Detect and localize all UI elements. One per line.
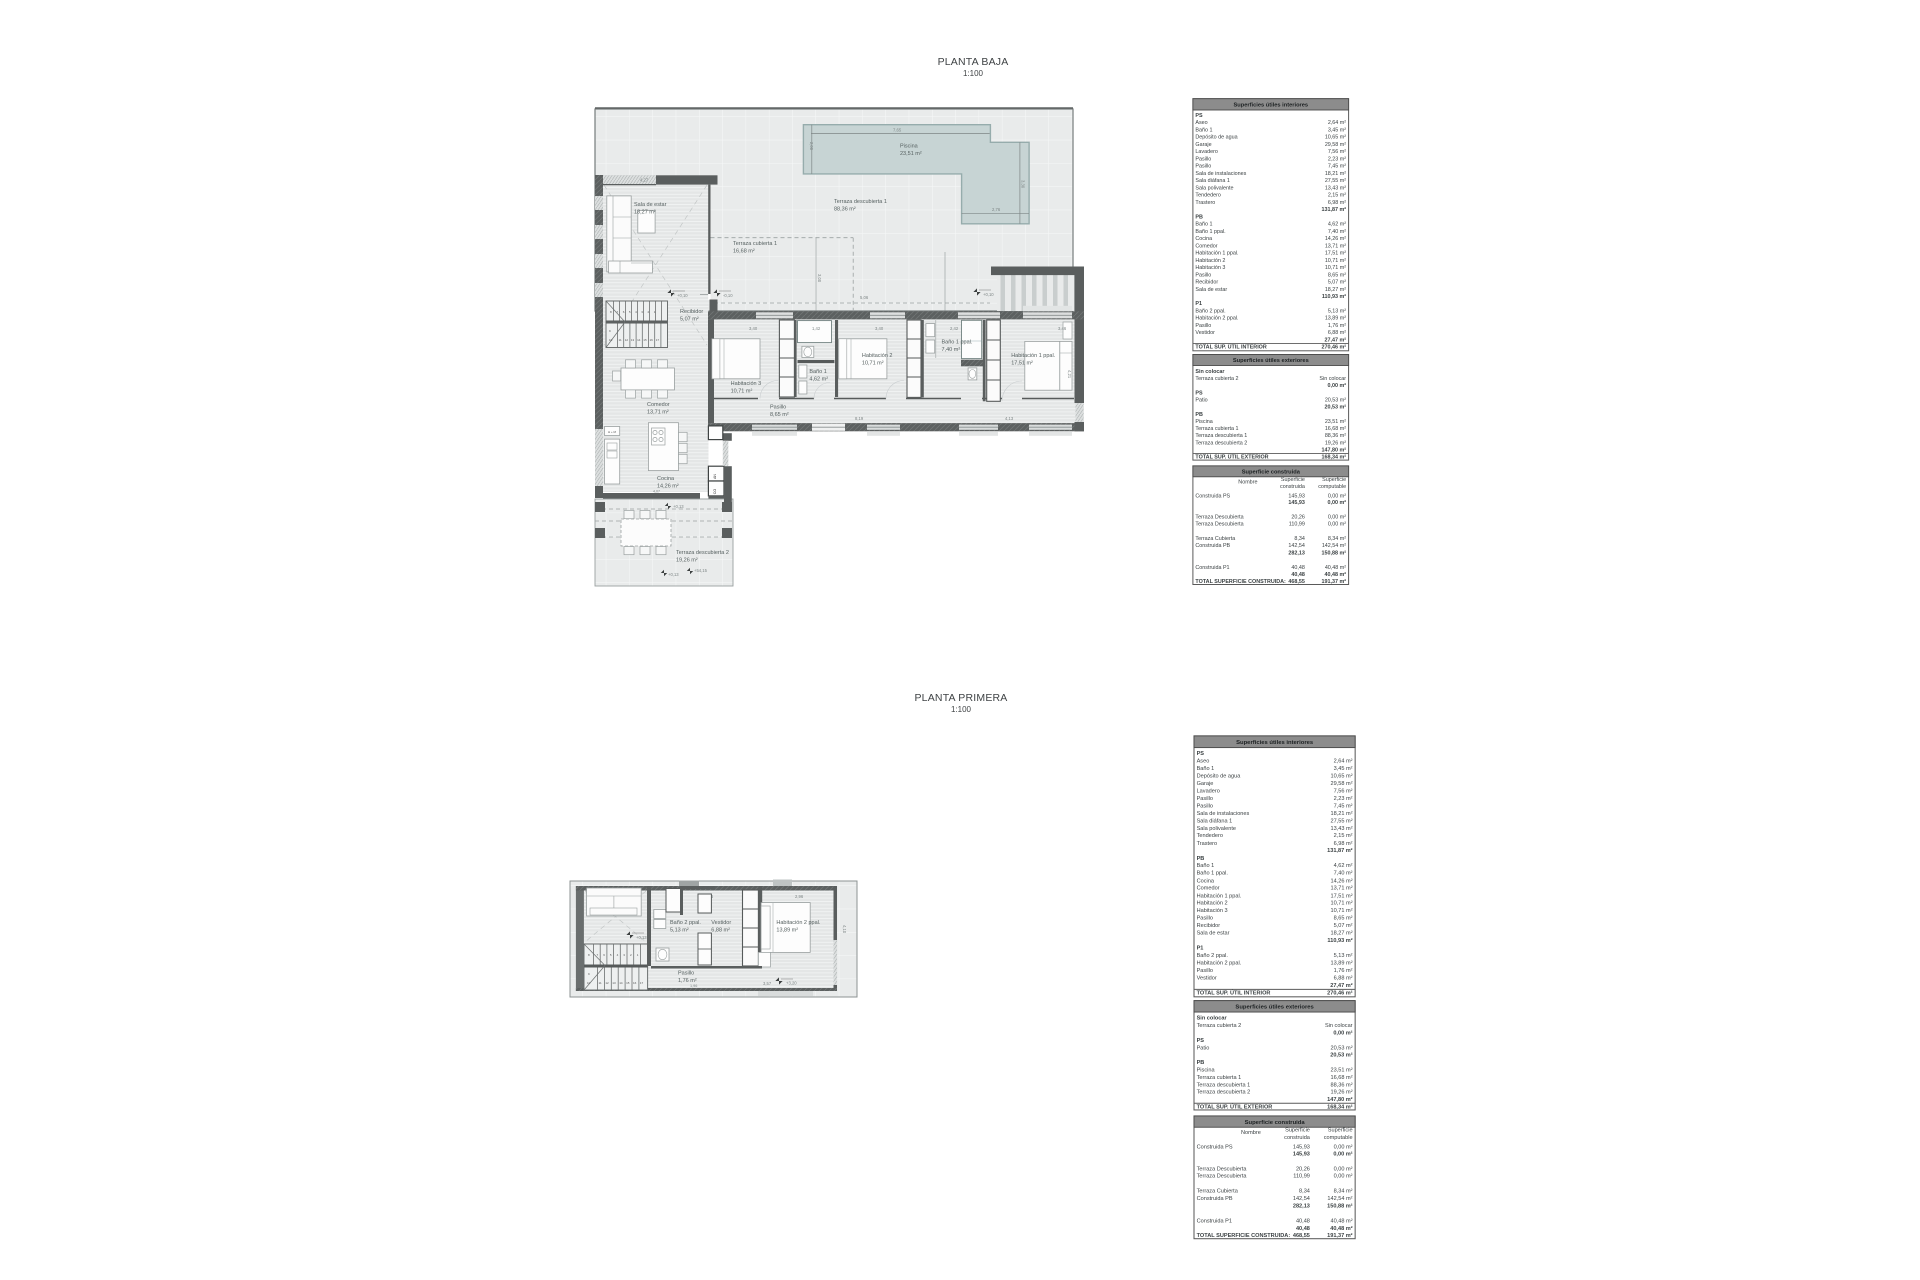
- svg-text:1:100: 1:100: [963, 69, 984, 78]
- svg-text:Baño 1: Baño 1: [1195, 128, 1212, 134]
- svg-text:Baño 2 ppal.: Baño 2 ppal.: [1195, 309, 1225, 315]
- svg-text:2,64 m²: 2,64 m²: [1328, 120, 1346, 126]
- svg-text:110,93 m²: 110,93 m²: [1322, 294, 1346, 300]
- svg-text:construida: construida: [1280, 484, 1305, 490]
- svg-text:Terraza cubierta 2: Terraza cubierta 2: [1195, 376, 1238, 382]
- svg-text:4,13: 4,13: [1005, 416, 1014, 421]
- svg-text:4,27: 4,27: [640, 178, 649, 183]
- svg-text:23,51 m²: 23,51 m²: [900, 151, 922, 157]
- svg-text:Pasillo: Pasillo: [1195, 272, 1211, 278]
- svg-text:Sala de instalaciones: Sala de instalaciones: [1195, 171, 1246, 177]
- svg-text:Recibidor: Recibidor: [1195, 280, 1218, 286]
- svg-text:Garaje: Garaje: [1195, 142, 1211, 148]
- svg-text:10: 10: [609, 338, 613, 342]
- svg-text:17: 17: [640, 981, 644, 985]
- svg-text:Baño 1: Baño 1: [1195, 222, 1212, 228]
- svg-text:Pasillo: Pasillo: [770, 405, 786, 411]
- svg-text:H + M: H + M: [608, 430, 617, 434]
- svg-text:270,46 m²: 270,46 m²: [1322, 345, 1347, 351]
- svg-text:3,40: 3,40: [749, 326, 758, 331]
- svg-text:Superficie: Superficie: [1281, 477, 1305, 483]
- svg-text:Trastero: Trastero: [1195, 200, 1215, 206]
- svg-text:15: 15: [626, 981, 630, 985]
- svg-text:8,65 m²: 8,65 m²: [770, 412, 789, 418]
- svg-text:TOTAL SUP. ÚTIL INTERIOR: TOTAL SUP. ÚTIL INTERIOR: [1195, 344, 1266, 351]
- svg-text:Vestidor: Vestidor: [711, 920, 731, 926]
- svg-text:2,15 m²: 2,15 m²: [1328, 193, 1346, 199]
- svg-text:Pasillo: Pasillo: [1195, 164, 1211, 170]
- svg-text:Sala de estar: Sala de estar: [634, 202, 667, 208]
- svg-text:2,96: 2,96: [795, 894, 804, 899]
- svg-text:Lavadero: Lavadero: [1195, 149, 1217, 155]
- svg-text:Habitación 2: Habitación 2: [1195, 258, 1225, 264]
- svg-text:2,76: 2,76: [992, 207, 1001, 212]
- svg-text:17,51 m²: 17,51 m²: [1011, 361, 1033, 367]
- svg-text:6,88 m²: 6,88 m²: [711, 928, 730, 934]
- svg-text:16: 16: [633, 981, 637, 985]
- svg-text:20,26: 20,26: [1291, 515, 1305, 521]
- svg-text:5,07 m²: 5,07 m²: [1328, 280, 1346, 286]
- svg-text:3,57: 3,57: [763, 981, 772, 986]
- svg-text:10,65 m²: 10,65 m²: [1325, 135, 1346, 141]
- svg-text:Habitación 3: Habitación 3: [731, 381, 762, 387]
- svg-text:8,19: 8,19: [855, 416, 864, 421]
- svg-text:Superficie: Superficie: [1322, 477, 1346, 483]
- svg-text:computable: computable: [1318, 484, 1346, 490]
- svg-text:Habitación 1 ppal.: Habitación 1 ppal.: [1195, 251, 1238, 257]
- svg-text:PS: PS: [1195, 390, 1203, 396]
- svg-text:10,71 m²: 10,71 m²: [731, 389, 753, 395]
- svg-text:16,68 m²: 16,68 m²: [1325, 426, 1346, 432]
- svg-text:0,00 m²: 0,00 m²: [1328, 500, 1347, 506]
- svg-text:Patio: Patio: [1195, 398, 1207, 404]
- svg-text:14,26 m²: 14,26 m²: [1325, 236, 1346, 242]
- svg-text:13,89 m²: 13,89 m²: [776, 928, 798, 934]
- svg-text:5,13 m²: 5,13 m²: [1328, 309, 1346, 315]
- svg-text:150,88 m²: 150,88 m²: [1322, 550, 1347, 556]
- svg-text:11: 11: [619, 338, 622, 342]
- svg-text:Terraza descubierta 2: Terraza descubierta 2: [1195, 440, 1247, 446]
- svg-text:12: 12: [625, 338, 629, 342]
- svg-text:1:100: 1:100: [951, 705, 972, 714]
- svg-text:Habitación 2 ppal.: Habitación 2 ppal.: [1195, 316, 1238, 322]
- svg-text:0,00 m²: 0,00 m²: [1328, 383, 1347, 389]
- svg-text:Sala de estar: Sala de estar: [1195, 287, 1227, 293]
- svg-text:PLANTA PRIMERA: PLANTA PRIMERA: [914, 692, 1007, 704]
- svg-text:Superficies útiles exteriores: Superficies útiles exteriores: [1233, 358, 1309, 364]
- svg-text:142,54 m²: 142,54 m²: [1322, 543, 1346, 549]
- svg-text:13: 13: [612, 981, 616, 985]
- svg-text:13,71 m²: 13,71 m²: [1325, 243, 1346, 249]
- svg-text:Nombre: Nombre: [1238, 479, 1257, 485]
- svg-text:13,89 m²: 13,89 m²: [1325, 316, 1346, 322]
- svg-text:4,21: 4,21: [1067, 370, 1072, 379]
- svg-text:0,00 m²: 0,00 m²: [1328, 494, 1346, 500]
- svg-text:3,40: 3,40: [875, 326, 884, 331]
- svg-text:Comedor: Comedor: [1195, 243, 1217, 249]
- svg-text:147,80 m²: 147,80 m²: [1322, 448, 1347, 454]
- svg-text:110,99: 110,99: [1289, 521, 1305, 527]
- svg-text:Baño 1 ppal.: Baño 1 ppal.: [942, 340, 973, 346]
- svg-text:Sala diáfana 1: Sala diáfana 1: [1195, 178, 1229, 184]
- svg-text:10,71 m²: 10,71 m²: [1325, 265, 1346, 271]
- svg-text:4,10: 4,10: [842, 925, 847, 934]
- svg-text:27,55 m²: 27,55 m²: [1325, 178, 1346, 184]
- svg-text:Construida P1: Construida P1: [1195, 565, 1229, 571]
- svg-text:88,36 m²: 88,36 m²: [834, 207, 856, 213]
- svg-text:4,07: 4,07: [653, 490, 660, 494]
- svg-text:7,56 m²: 7,56 m²: [1328, 149, 1346, 155]
- svg-text:20,53 m²: 20,53 m²: [1325, 405, 1347, 411]
- svg-text:8,65 m²: 8,65 m²: [1328, 272, 1346, 278]
- svg-text:168,34 m²: 168,34 m²: [1322, 455, 1347, 461]
- svg-text:20,53 m²: 20,53 m²: [1325, 398, 1346, 404]
- svg-text:40,48: 40,48: [1291, 572, 1305, 578]
- svg-text:18,27 m²: 18,27 m²: [1325, 287, 1346, 293]
- svg-text:8,34 m²: 8,34 m²: [1328, 536, 1346, 542]
- svg-text:Sin colocar: Sin colocar: [1195, 369, 1225, 375]
- svg-text:3,46: 3,46: [1058, 326, 1067, 331]
- svg-text:Piscina: Piscina: [1195, 419, 1212, 425]
- svg-text:Terraza cubierta 1: Terraza cubierta 1: [1195, 426, 1238, 432]
- svg-text:142,54: 142,54: [1288, 543, 1305, 549]
- svg-text:PLANTA BAJA: PLANTA BAJA: [938, 56, 1009, 68]
- svg-text:Comedor: Comedor: [647, 402, 670, 408]
- svg-text:PB: PB: [1195, 412, 1203, 418]
- svg-text:P1: P1: [1195, 301, 1202, 307]
- svg-text:Superficies útiles interiores: Superficies útiles interiores: [1233, 102, 1308, 108]
- svg-text:+0,13: +0,13: [636, 935, 647, 940]
- svg-text:Terraza descubierta 1: Terraza descubierta 1: [1195, 433, 1247, 439]
- svg-text:23,51 m²: 23,51 m²: [1325, 419, 1346, 425]
- svg-text:7,40 m²: 7,40 m²: [1328, 229, 1346, 235]
- svg-text:145,93: 145,93: [1288, 494, 1305, 500]
- svg-text:29,58 m²: 29,58 m²: [1325, 142, 1346, 148]
- svg-text:17: 17: [656, 338, 660, 342]
- svg-text:17,51 m²: 17,51 m²: [1325, 251, 1346, 257]
- svg-text:Cocina: Cocina: [657, 476, 675, 482]
- svg-text:Habitación 2 ppal.: Habitación 2 ppal.: [776, 920, 821, 926]
- svg-text:Pasillo: Pasillo: [1195, 156, 1211, 162]
- svg-text:Pasillo: Pasillo: [678, 971, 694, 977]
- svg-text:Tendedero: Tendedero: [1195, 193, 1220, 199]
- svg-text:7,40 m²: 7,40 m²: [942, 347, 961, 353]
- svg-text:TOTAL SUP. ÚTIL EXTERIOR: TOTAL SUP. ÚTIL EXTERIOR: [1195, 454, 1268, 461]
- svg-text:Terraza Descubierta: Terraza Descubierta: [1195, 515, 1243, 521]
- svg-text:40,48: 40,48: [1291, 565, 1305, 571]
- svg-text:PS: PS: [1195, 113, 1203, 119]
- svg-text:7,65: 7,65: [893, 128, 902, 133]
- svg-text:Construida PS: Construida PS: [1195, 494, 1230, 500]
- svg-text:14: 14: [619, 981, 623, 985]
- svg-text:12: 12: [605, 981, 609, 985]
- svg-text:Habitación 2: Habitación 2: [862, 353, 893, 359]
- svg-text:AN: AN: [713, 474, 717, 479]
- svg-text:7,45 m²: 7,45 m²: [1328, 164, 1346, 170]
- svg-text:TOTAL SUPERFICIE CONSTRUIDA:: TOTAL SUPERFICIE CONSTRUIDA:: [1195, 579, 1286, 585]
- svg-text:CO: CO: [713, 489, 717, 495]
- svg-text:3,00: 3,00: [817, 274, 822, 283]
- svg-text:Recibidor: Recibidor: [680, 309, 703, 315]
- svg-text:Baño 2 ppal.: Baño 2 ppal.: [670, 920, 701, 926]
- svg-text:6,98 m²: 6,98 m²: [1328, 200, 1346, 206]
- svg-text:88,36 m²: 88,36 m²: [1325, 433, 1346, 439]
- svg-text:40,48 m²: 40,48 m²: [1325, 572, 1347, 578]
- svg-text:13: 13: [631, 338, 635, 342]
- svg-text:14,26 m²: 14,26 m²: [657, 484, 679, 490]
- svg-text:Habitación 1 ppal.: Habitación 1 ppal.: [1011, 353, 1056, 359]
- svg-text:Depósito de agua: Depósito de agua: [1195, 135, 1237, 141]
- svg-text:Vestidor: Vestidor: [1195, 330, 1215, 336]
- svg-text:13,71 m²: 13,71 m²: [647, 410, 669, 416]
- svg-text:3,30: 3,30: [1021, 180, 1026, 189]
- svg-text:+0,10: +0,10: [983, 292, 994, 297]
- svg-text:16,68 m²: 16,68 m²: [733, 249, 755, 255]
- svg-text:8,34: 8,34: [1294, 536, 1305, 542]
- svg-text:1,96: 1,96: [690, 984, 697, 988]
- svg-text:1,42: 1,42: [812, 326, 821, 331]
- svg-text:0,00 m²: 0,00 m²: [1328, 521, 1346, 527]
- svg-text:+0,10: +0,10: [677, 293, 688, 298]
- svg-text:15: 15: [643, 338, 647, 342]
- svg-text:18,21 m²: 18,21 m²: [1325, 171, 1346, 177]
- svg-text:4,62 m²: 4,62 m²: [1328, 222, 1346, 228]
- svg-text:2,00: 2,00: [809, 142, 814, 151]
- svg-text:5,06: 5,06: [860, 295, 869, 300]
- svg-text:27,47 m²: 27,47 m²: [1325, 337, 1347, 343]
- svg-text:+54,15: +54,15: [694, 568, 708, 573]
- svg-text:16: 16: [650, 338, 654, 342]
- svg-text:19,26 m²: 19,26 m²: [676, 558, 698, 564]
- svg-text:+0,13: +0,13: [668, 572, 679, 577]
- svg-text:1,76 m²: 1,76 m²: [1328, 323, 1346, 329]
- svg-text:PB: PB: [1195, 214, 1203, 220]
- svg-text:2,42: 2,42: [950, 326, 959, 331]
- svg-text:10,71 m²: 10,71 m²: [862, 361, 884, 367]
- svg-text:Terraza descubierta 1: Terraza descubierta 1: [834, 199, 887, 205]
- svg-text:Baño 1 ppal.: Baño 1 ppal.: [1195, 229, 1225, 235]
- svg-text:11: 11: [599, 981, 602, 985]
- svg-text:Aseo: Aseo: [1195, 120, 1207, 126]
- svg-text:Baño 1: Baño 1: [809, 369, 826, 375]
- svg-text:4,62 m²: 4,62 m²: [809, 377, 828, 383]
- svg-text:2,23 m²: 2,23 m²: [1328, 156, 1346, 162]
- svg-text:Superficie construida: Superficie construida: [1242, 470, 1301, 476]
- svg-text:18,27 m²: 18,27 m²: [634, 210, 656, 216]
- svg-text:Terraza Cubierta: Terraza Cubierta: [1195, 536, 1235, 542]
- svg-text:Cocina: Cocina: [1195, 236, 1212, 242]
- svg-text:10: 10: [587, 981, 591, 985]
- svg-text:6,88 m²: 6,88 m²: [1328, 330, 1346, 336]
- svg-text:Sala polivalente: Sala polivalente: [1195, 185, 1233, 191]
- svg-text:Terraza descubierta 2: Terraza descubierta 2: [676, 550, 729, 556]
- svg-text:Construida PB: Construida PB: [1195, 543, 1230, 549]
- svg-text:10,71 m²: 10,71 m²: [1325, 258, 1346, 264]
- svg-text:Sin colocar: Sin colocar: [1319, 376, 1346, 382]
- svg-text:Piscina: Piscina: [900, 144, 919, 150]
- svg-text:+0,13: +0,13: [673, 504, 684, 509]
- svg-text:191,37 m²: 191,37 m²: [1322, 579, 1347, 585]
- svg-text:3,45 m²: 3,45 m²: [1328, 128, 1346, 134]
- svg-text:Habitación 3: Habitación 3: [1195, 265, 1225, 271]
- svg-text:0,00 m²: 0,00 m²: [1328, 515, 1346, 521]
- svg-text:Terraza cubierta 1: Terraza cubierta 1: [733, 241, 777, 247]
- svg-text:282,13: 282,13: [1288, 550, 1305, 556]
- svg-text:19,26 m²: 19,26 m²: [1325, 440, 1346, 446]
- svg-text:+3,20: +3,20: [786, 981, 797, 986]
- svg-text:Terraza Descubierta: Terraza Descubierta: [1195, 521, 1243, 527]
- svg-text:5,07 m²: 5,07 m²: [680, 317, 699, 323]
- svg-text:131,87 m²: 131,87 m²: [1322, 207, 1347, 213]
- svg-text:5,13 m²: 5,13 m²: [670, 928, 689, 934]
- svg-text:145,93: 145,93: [1288, 500, 1305, 506]
- svg-text:13,43 m²: 13,43 m²: [1325, 185, 1346, 191]
- svg-text:14: 14: [637, 338, 641, 342]
- svg-text:Pasillo: Pasillo: [1195, 323, 1211, 329]
- svg-text:468,55: 468,55: [1288, 579, 1305, 585]
- svg-text:40,48 m²: 40,48 m²: [1325, 565, 1346, 571]
- svg-text:-0,10: -0,10: [723, 293, 733, 298]
